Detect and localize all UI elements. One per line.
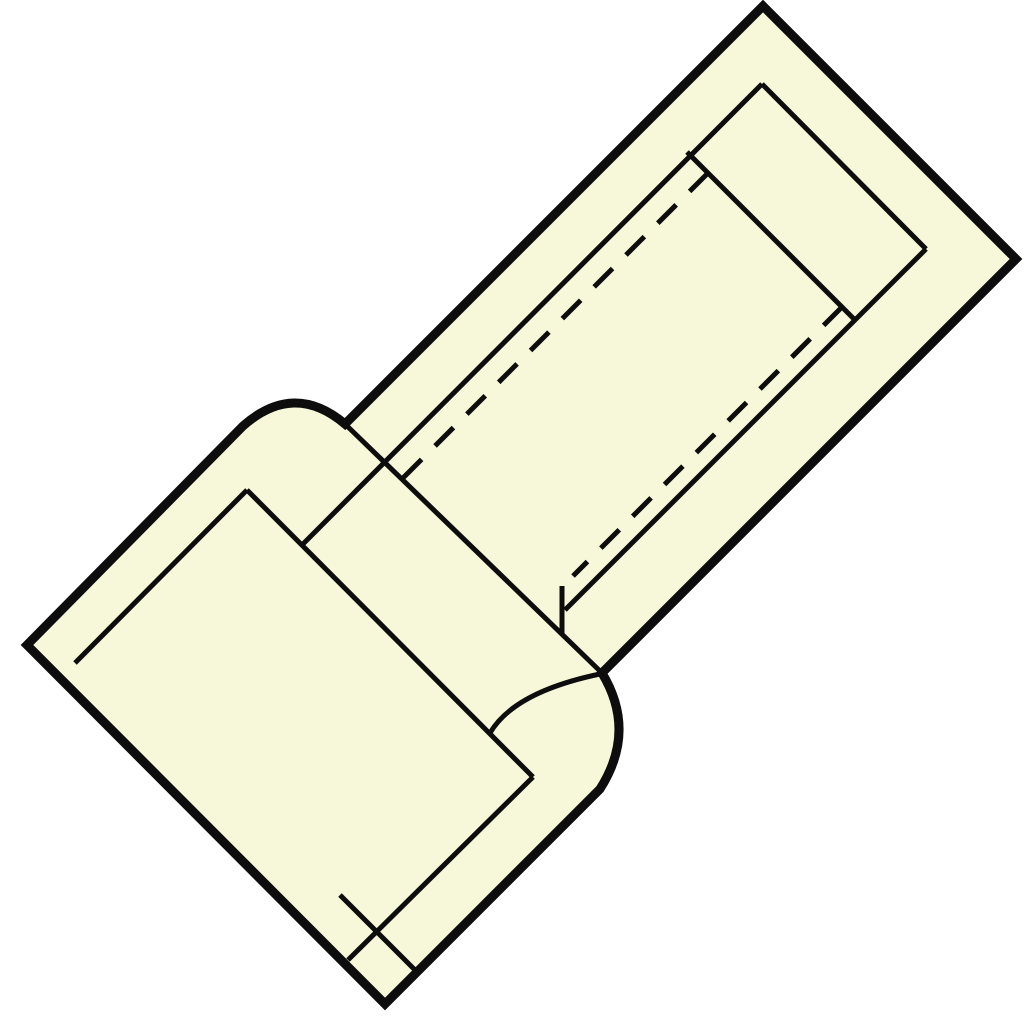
connector-outer-outline xyxy=(27,6,1016,1004)
connector-technical-drawing xyxy=(0,0,1024,1024)
drawing-stage xyxy=(0,0,1024,1024)
